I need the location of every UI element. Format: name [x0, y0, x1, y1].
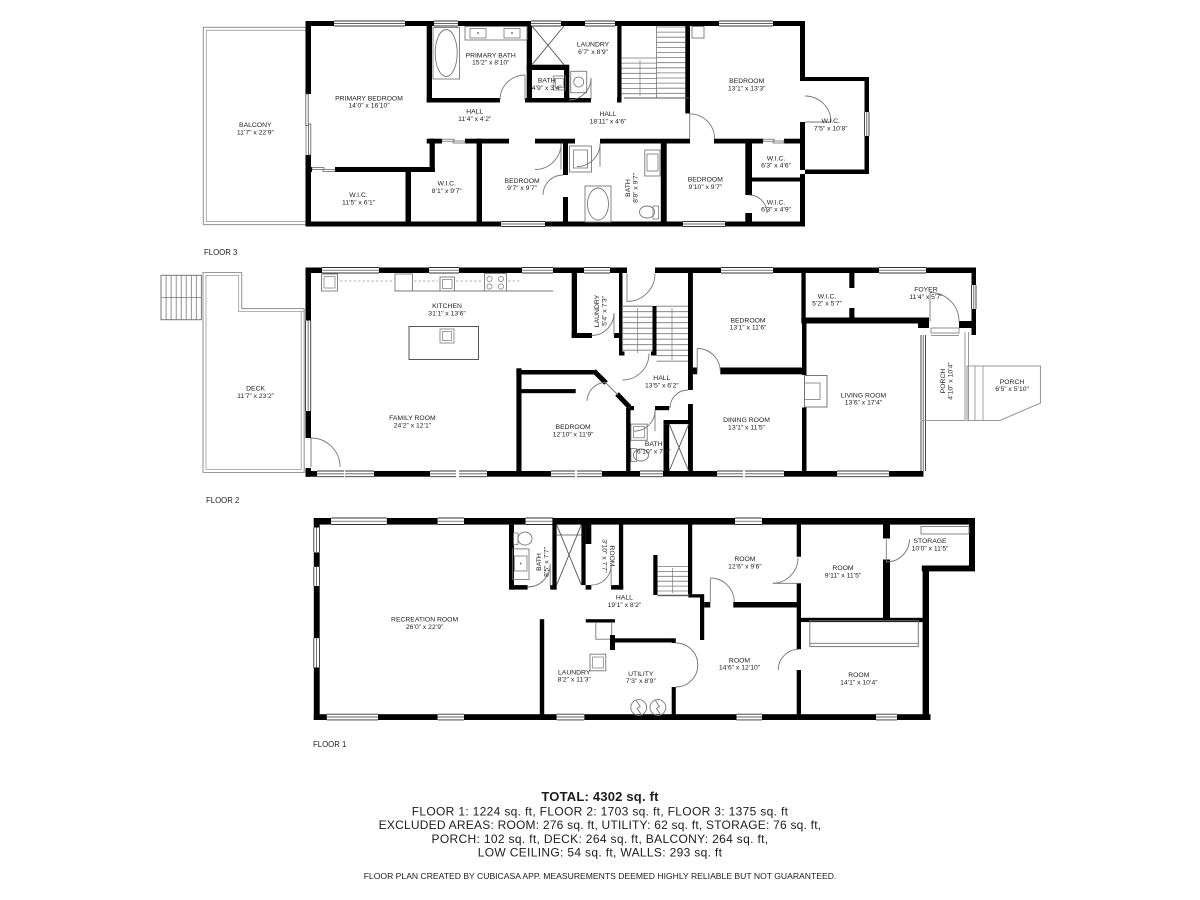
- svg-text:BALCONY: BALCONY: [239, 122, 272, 129]
- svg-text:KITCHEN: KITCHEN: [432, 303, 462, 310]
- svg-text:FAMILY ROOM: FAMILY ROOM: [389, 415, 436, 422]
- svg-text:7’5” x 10’8”: 7’5” x 10’8”: [814, 125, 848, 132]
- svg-text:FLOOR 1: 1224 sq. ft, FLOOR 2:: FLOOR 1: 1224 sq. ft, FLOOR 2: 1703 sq. …: [412, 805, 789, 819]
- svg-text:ROOM: ROOM: [608, 545, 615, 566]
- svg-text:13’1” x 11’5”: 13’1” x 11’5”: [728, 425, 766, 432]
- svg-text:31’1” x 13’6”: 31’1” x 13’6”: [428, 310, 466, 317]
- svg-text:DINING ROOM: DINING ROOM: [723, 417, 770, 424]
- svg-text:LAUNDRY: LAUNDRY: [558, 669, 591, 676]
- svg-text:PRIMARY BATH: PRIMARY BATH: [466, 52, 516, 59]
- svg-text:BEDROOM: BEDROOM: [505, 178, 540, 185]
- svg-text:9’11” x 11’5”: 9’11” x 11’5”: [825, 573, 862, 580]
- svg-text:FLOOR 1: FLOOR 1: [313, 740, 346, 749]
- svg-text:11’7” x 23’2”: 11’7” x 23’2”: [237, 393, 275, 400]
- svg-text:11’7” x 22’9”: 11’7” x 22’9”: [237, 129, 275, 136]
- svg-text:ROOM: ROOM: [832, 565, 853, 572]
- svg-text:13’6” x 17’4”: 13’6” x 17’4”: [845, 400, 883, 407]
- svg-text:FLOOR 2: FLOOR 2: [206, 496, 239, 505]
- svg-text:6’5” x 5’10”: 6’5” x 5’10”: [995, 386, 1029, 393]
- svg-text:8’1” x 9’7”: 8’1” x 9’7”: [432, 188, 463, 195]
- svg-text:19’1” x 8’2”: 19’1” x 8’2”: [608, 602, 642, 609]
- svg-text:FLOOR 3: FLOOR 3: [204, 248, 237, 257]
- svg-text:BEDROOM: BEDROOM: [688, 177, 723, 184]
- svg-text:ROOM: ROOM: [734, 556, 755, 563]
- svg-text:DECK: DECK: [246, 386, 265, 393]
- svg-text:11’5” x 6’1”: 11’5” x 6’1”: [342, 199, 376, 206]
- svg-text:TOTAL: 4302 sq. ft: TOTAL: 4302 sq. ft: [541, 789, 659, 804]
- svg-text:8’8” x 9’7”: 8’8” x 9’7”: [632, 172, 639, 203]
- svg-text:LAUNDRY: LAUNDRY: [594, 294, 601, 327]
- svg-text:15’2” x 8’10”: 15’2” x 8’10”: [472, 60, 510, 67]
- svg-text:LOW CEILING: 54 sq. ft, WALLS:: LOW CEILING: 54 sq. ft, WALLS: 293 sq. f…: [478, 845, 723, 859]
- svg-text:STORAGE: STORAGE: [913, 538, 947, 545]
- svg-text:PORCH: PORCH: [940, 369, 947, 394]
- svg-text:6’3” x 4’9”: 6’3” x 4’9”: [761, 207, 792, 214]
- svg-text:BEDROOM: BEDROOM: [556, 424, 591, 431]
- svg-text:ROOM: ROOM: [729, 657, 750, 664]
- svg-text:12’6” x 9’6”: 12’6” x 9’6”: [728, 564, 762, 571]
- svg-text:BATH: BATH: [536, 553, 543, 571]
- svg-text:HALL: HALL: [653, 375, 670, 382]
- svg-text:HALL: HALL: [599, 111, 616, 118]
- svg-text:3’10” x 7’7”: 3’10” x 7’7”: [601, 539, 608, 573]
- svg-text:9’10” x 9’7”: 9’10” x 9’7”: [688, 184, 722, 191]
- svg-text:24’2” x 12’1”: 24’2” x 12’1”: [394, 423, 432, 430]
- svg-text:BATH: BATH: [625, 179, 632, 197]
- svg-text:26’0” x 22’9”: 26’0” x 22’9”: [406, 624, 444, 631]
- svg-text:BATH: BATH: [645, 441, 663, 448]
- svg-text:W.I.C.: W.I.C.: [767, 155, 786, 162]
- svg-text:11’4” x 4’2”: 11’4” x 4’2”: [458, 116, 492, 123]
- svg-text:13’1” x 13’3”: 13’1” x 13’3”: [728, 85, 766, 92]
- svg-text:PORCH: PORCH: [1000, 379, 1025, 386]
- svg-text:EXCLUDED AREAS: ROOM: 276 sq.: EXCLUDED AREAS: ROOM: 276 sq. ft, UTILIT…: [379, 818, 822, 832]
- svg-text:8’5” x 7’7”: 8’5” x 7’7”: [543, 546, 550, 577]
- svg-text:4’10” x 10’4”: 4’10” x 10’4”: [947, 362, 954, 400]
- svg-text:10’0” x 11’5”: 10’0” x 11’5”: [912, 546, 950, 553]
- svg-text:14’0” x 16’10”: 14’0” x 16’10”: [348, 103, 390, 110]
- svg-text:PORCH: 102 sq. ft, DECK: 264 s: PORCH: 102 sq. ft, DECK: 264 sq. ft, BAL…: [432, 832, 769, 846]
- svg-text:W.I.C.: W.I.C.: [818, 293, 837, 300]
- svg-text:W.I.C.: W.I.C.: [821, 118, 840, 125]
- svg-text:8’2” x 11’3”: 8’2” x 11’3”: [558, 677, 592, 684]
- svg-text:9’7” x 9’7”: 9’7” x 9’7”: [507, 185, 538, 192]
- svg-text:ROOM: ROOM: [848, 672, 869, 679]
- svg-text:6’3” x 4’6”: 6’3” x 4’6”: [761, 163, 792, 170]
- svg-text:FOYER: FOYER: [914, 287, 938, 294]
- svg-text:HALL: HALL: [616, 594, 633, 601]
- svg-text:13’1” x 11’6”: 13’1” x 11’6”: [730, 325, 768, 332]
- svg-text:BEDROOM: BEDROOM: [730, 317, 765, 324]
- svg-text:18’11” x 4’6”: 18’11” x 4’6”: [590, 118, 628, 125]
- svg-text:14’6” x 12’10”: 14’6” x 12’10”: [719, 665, 761, 672]
- svg-text:4’9” x 3’4”: 4’9” x 3’4”: [532, 85, 563, 92]
- svg-text:7’3” x 8’9”: 7’3” x 8’9”: [626, 678, 657, 685]
- svg-text:BEDROOM: BEDROOM: [729, 78, 764, 85]
- svg-text:14’1” x 10’4”: 14’1” x 10’4”: [840, 679, 878, 686]
- svg-text:12’10” x 11’9”: 12’10” x 11’9”: [553, 431, 594, 438]
- svg-text:BATH: BATH: [538, 78, 556, 85]
- svg-text:6’10” x 7’4”: 6’10” x 7’4”: [637, 448, 671, 455]
- svg-text:13’5” x 6’2”: 13’5” x 6’2”: [645, 383, 679, 390]
- svg-text:RECREATION ROOM: RECREATION ROOM: [391, 617, 458, 624]
- svg-text:LIVING ROOM: LIVING ROOM: [841, 392, 887, 399]
- svg-text:W.I.C.: W.I.C.: [767, 199, 786, 206]
- svg-text:PRIMARY BEDROOM: PRIMARY BEDROOM: [335, 95, 403, 102]
- svg-text:UTILITY: UTILITY: [628, 671, 654, 678]
- svg-text:5’2” x 5’7”: 5’2” x 5’7”: [812, 301, 843, 308]
- svg-text:11’4” x 5’7”: 11’4” x 5’7”: [909, 294, 943, 301]
- svg-text:W.I.C.: W.I.C.: [349, 192, 368, 199]
- svg-text:FLOOR PLAN CREATED BY CUBICASA: FLOOR PLAN CREATED BY CUBICASA APP. MEAS…: [364, 871, 837, 881]
- svg-text:LAUNDRY: LAUNDRY: [577, 41, 610, 48]
- svg-text:HALL: HALL: [466, 109, 483, 116]
- svg-text:W.I.C.: W.I.C.: [437, 180, 456, 187]
- svg-text:5’4” x 7’3”: 5’4” x 7’3”: [601, 295, 608, 326]
- svg-text:6’7” x 8’9”: 6’7” x 8’9”: [578, 49, 609, 56]
